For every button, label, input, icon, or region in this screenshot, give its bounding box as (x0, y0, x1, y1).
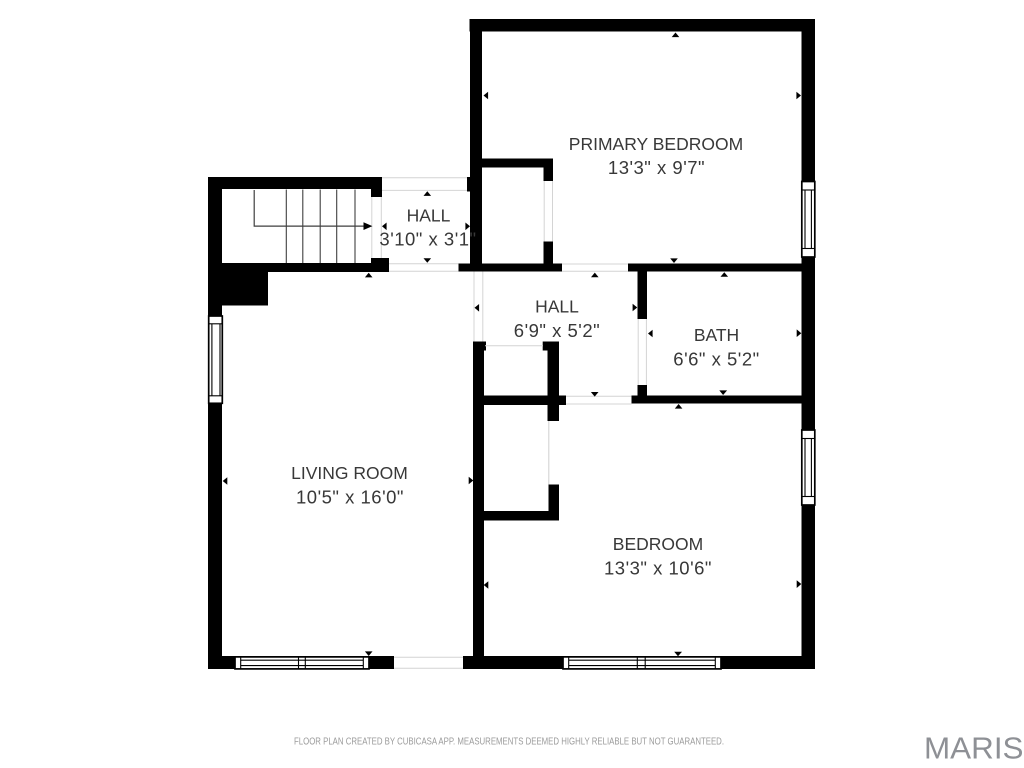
svg-text:HALL: HALL (535, 297, 579, 317)
svg-text:10'5" x 16'0": 10'5" x 16'0" (296, 486, 404, 507)
svg-text:13'3" x 9'7": 13'3" x 9'7" (608, 157, 705, 178)
svg-text:MARIS: MARIS (924, 732, 1024, 766)
svg-text:BEDROOM: BEDROOM (613, 534, 703, 554)
svg-text:6'6" x 5'2": 6'6" x 5'2" (673, 349, 759, 370)
svg-text:13'3" x 10'6": 13'3" x 10'6" (604, 557, 712, 578)
svg-text:LIVING ROOM: LIVING ROOM (291, 463, 408, 483)
svg-text:3'10" x 3'1": 3'10" x 3'1" (379, 228, 476, 249)
svg-text:HALL: HALL (407, 205, 451, 225)
svg-text:6'9" x 5'2": 6'9" x 5'2" (514, 320, 600, 341)
svg-text:FLOOR PLAN CREATED BY CUBICASA: FLOOR PLAN CREATED BY CUBICASA APP. MEAS… (294, 737, 724, 748)
svg-text:PRIMARY BEDROOM: PRIMARY BEDROOM (569, 134, 743, 154)
svg-text:BATH: BATH (694, 325, 739, 345)
